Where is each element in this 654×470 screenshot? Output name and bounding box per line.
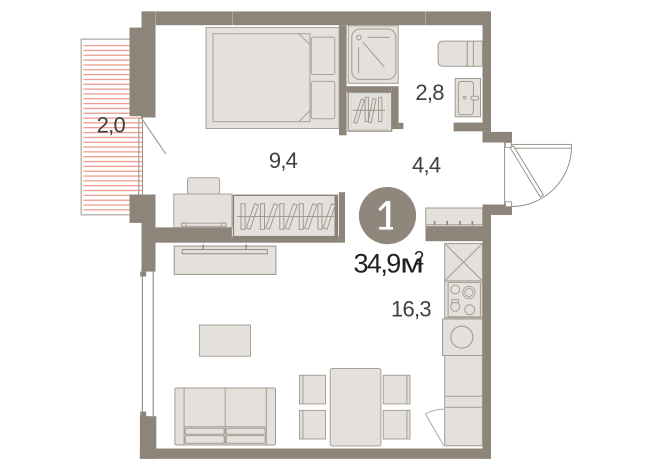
svg-text:34,9: 34,9 [354,249,401,279]
svg-text:4,4: 4,4 [412,153,441,178]
svg-text:9,4: 9,4 [269,148,298,173]
svg-text:16,3: 16,3 [391,296,431,321]
svg-text:2: 2 [414,248,425,269]
svg-text:2,8: 2,8 [415,80,444,105]
svg-text:2,0: 2,0 [97,113,126,138]
